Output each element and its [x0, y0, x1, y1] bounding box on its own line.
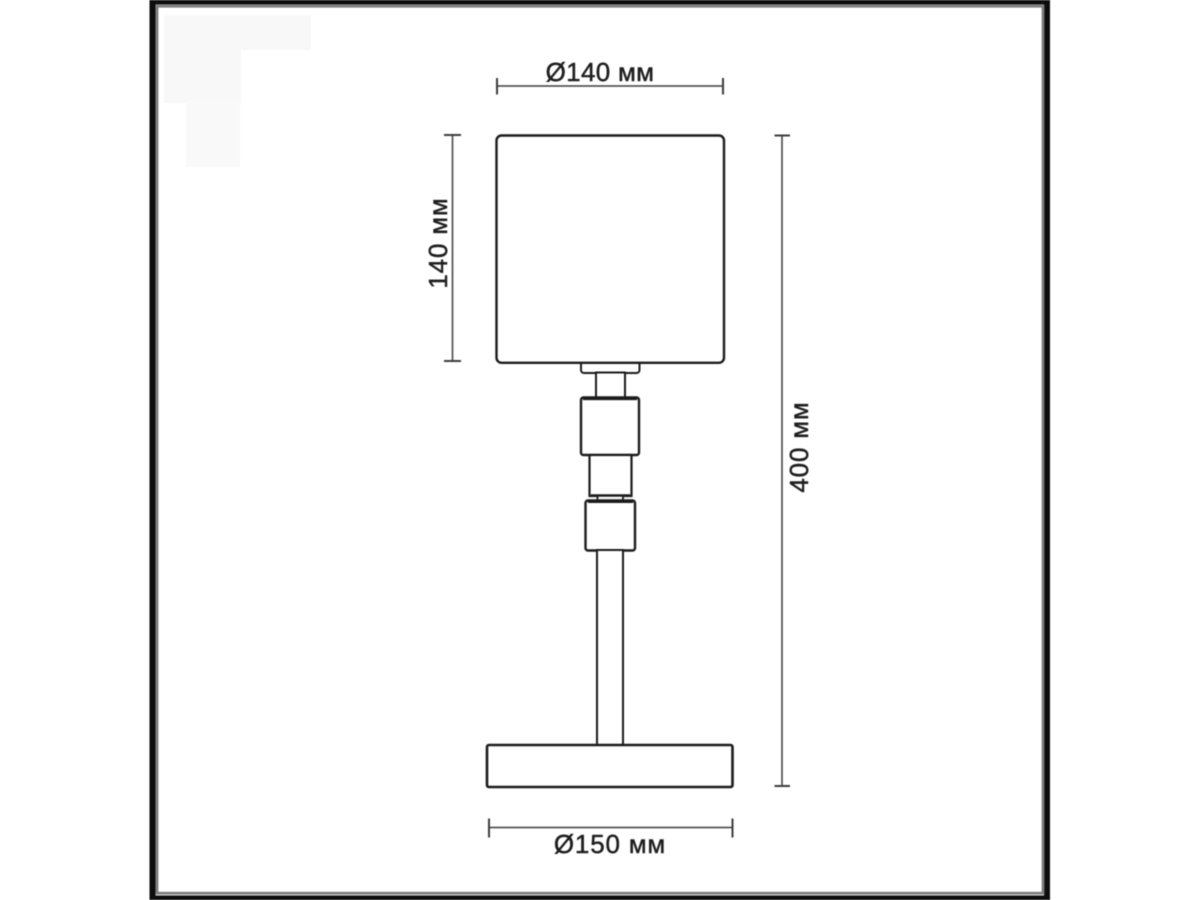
svg-text:400 мм: 400 мм: [784, 401, 814, 492]
svg-text:Ø140 мм: Ø140 мм: [546, 57, 655, 87]
svg-text:Ø150 мм: Ø150 мм: [554, 829, 666, 859]
svg-text:140 мм: 140 мм: [423, 197, 453, 288]
